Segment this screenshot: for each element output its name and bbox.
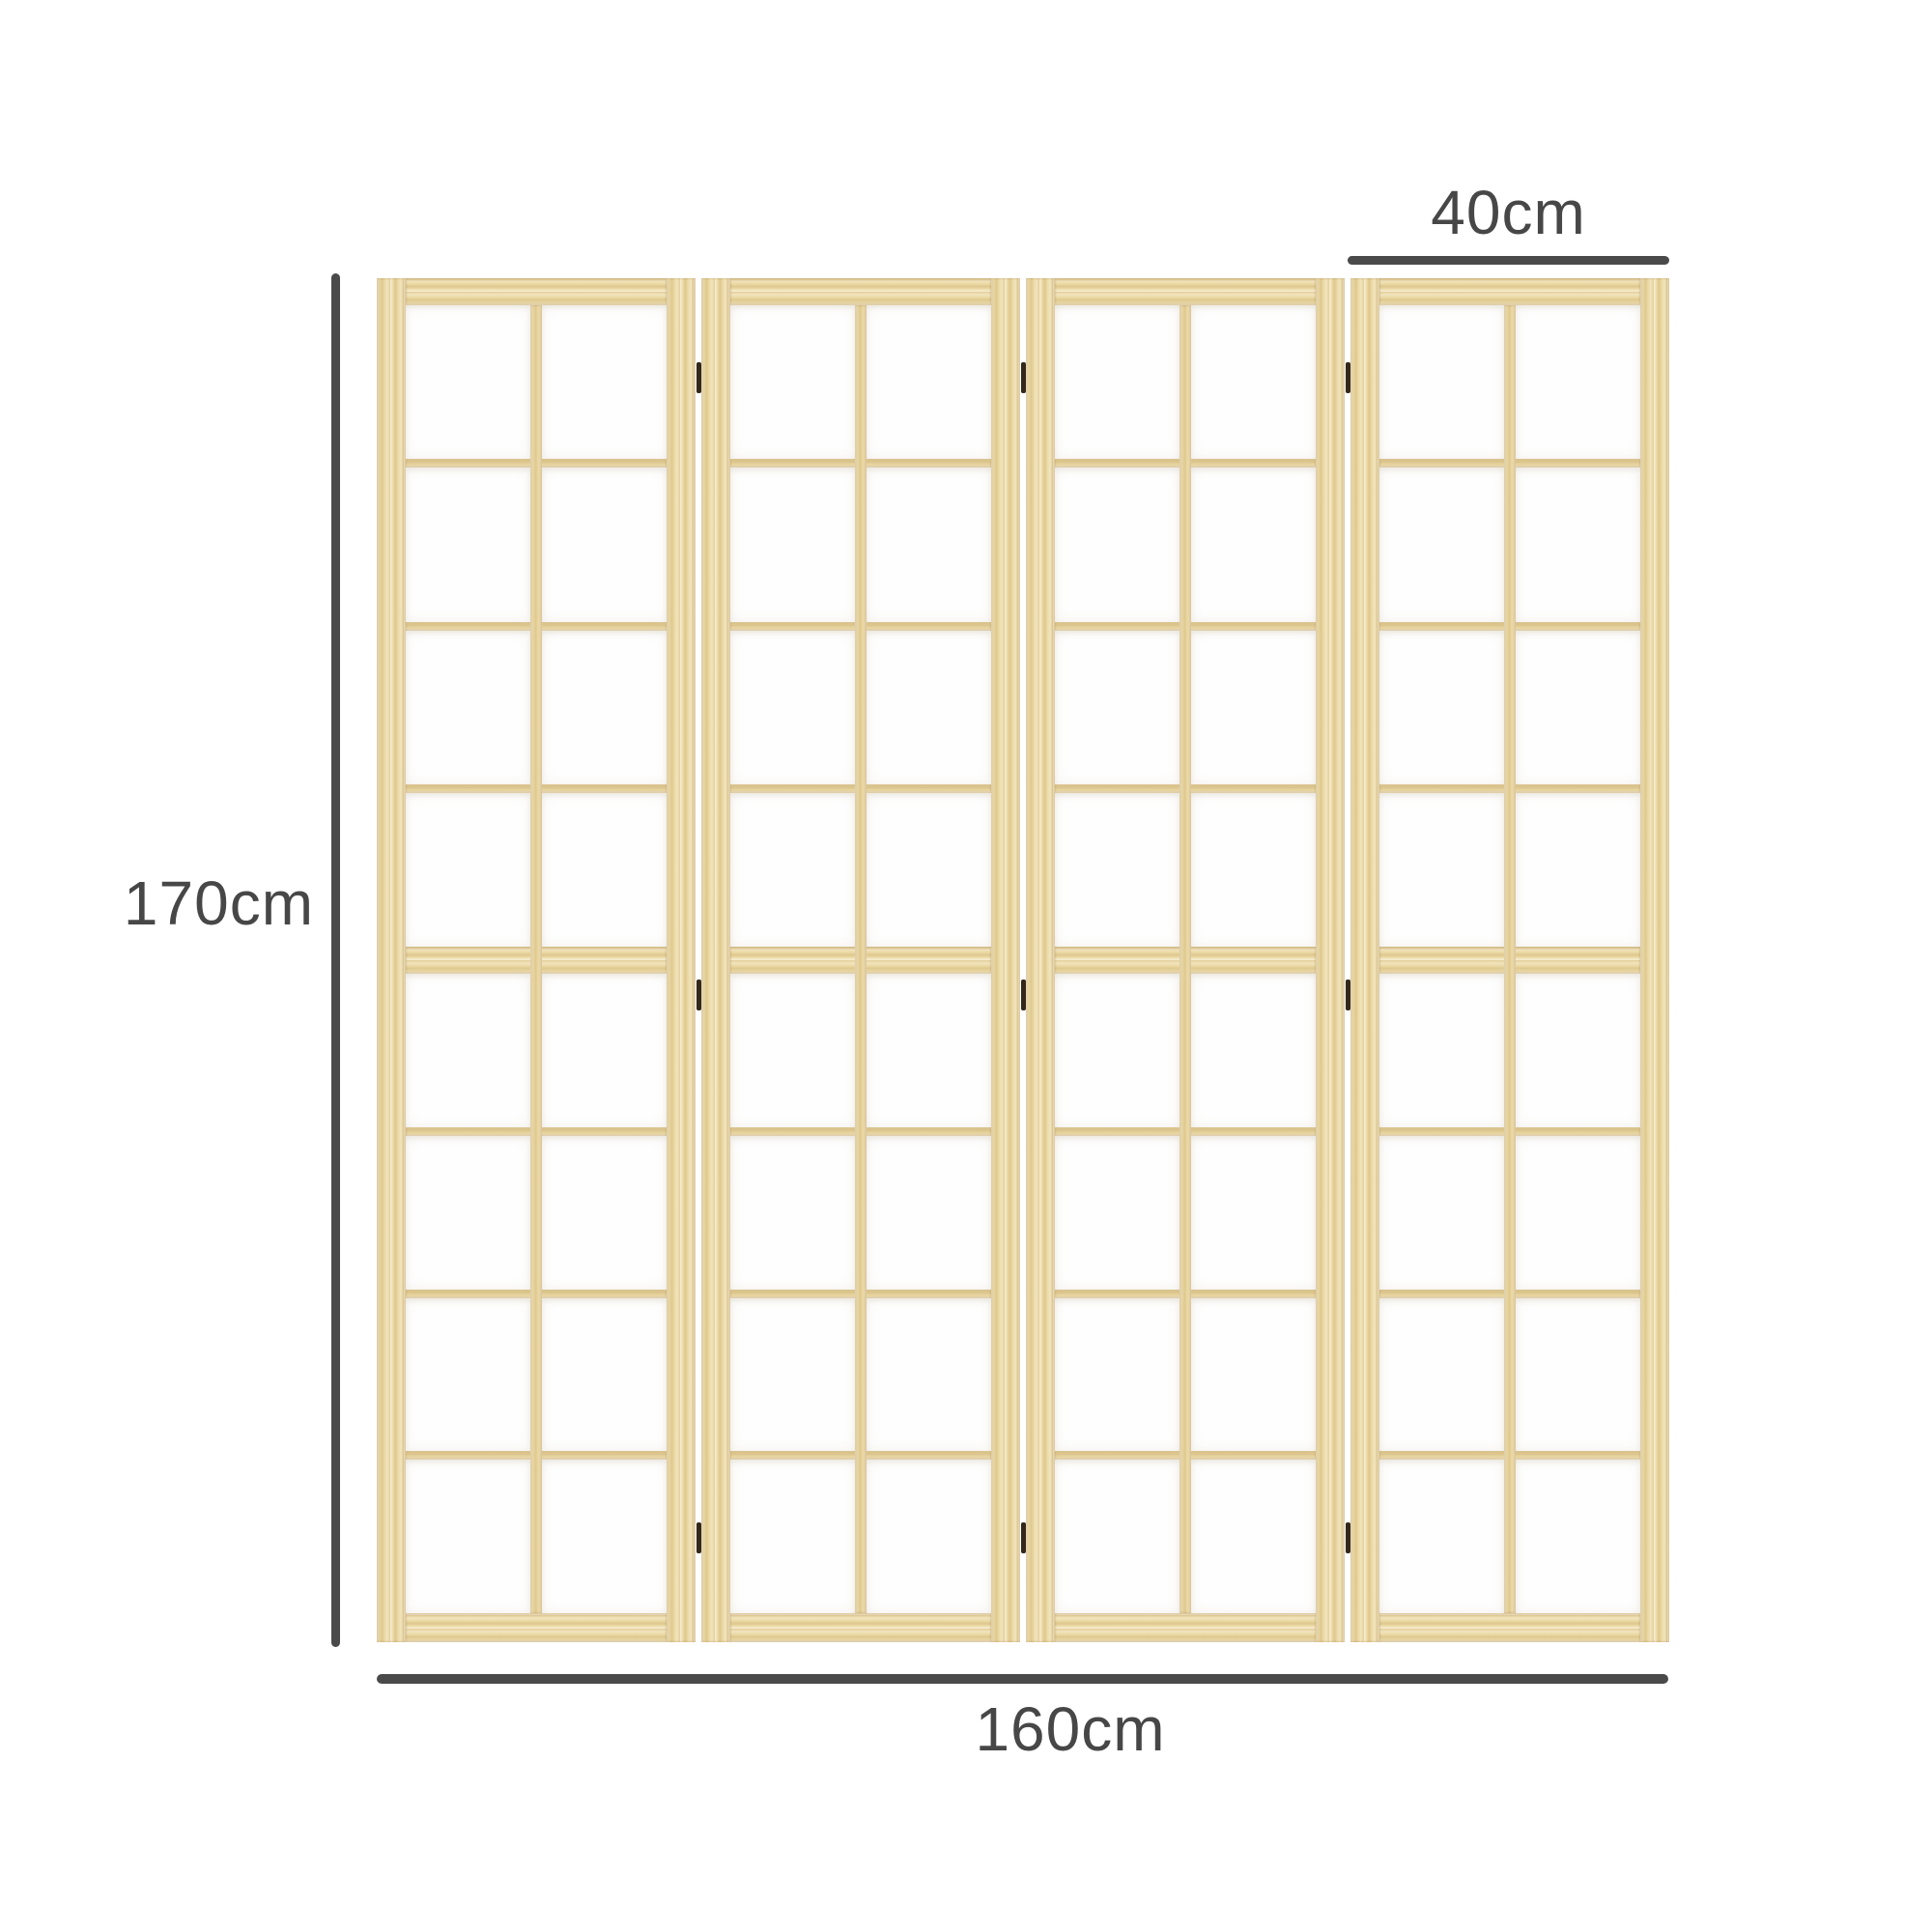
panel-width-dimension-label: 40cm	[1348, 182, 1669, 243]
panel-left-stile	[377, 278, 406, 1642]
shoji-pane	[1191, 1136, 1316, 1290]
shoji-pane	[867, 793, 991, 947]
panel-top-rail	[1379, 278, 1640, 305]
shoji-pane	[1191, 1460, 1316, 1613]
shoji-pane	[867, 1460, 991, 1613]
shoji-pane	[406, 793, 530, 947]
shoji-pane	[730, 1136, 855, 1290]
shoji-pane	[1379, 793, 1504, 947]
shoji-pane	[1379, 974, 1504, 1127]
shoji-pane	[1516, 793, 1640, 947]
shoji-pane	[542, 974, 667, 1127]
hinge	[1346, 362, 1350, 393]
shoji-pane	[406, 1460, 530, 1613]
shoji-pane	[867, 631, 991, 784]
shoji-pane	[867, 1136, 991, 1290]
shoji-pane	[867, 305, 991, 459]
panel-right-stile	[667, 278, 696, 1642]
shoji-pane	[1516, 305, 1640, 459]
product-dimension-diagram: 170cm 40cm 160cm	[0, 0, 1932, 1932]
shoji-pane	[730, 631, 855, 784]
panel-left-stile	[1026, 278, 1055, 1642]
shoji-pane	[1516, 1460, 1640, 1613]
shoji-pane	[542, 468, 667, 621]
panel-top-rail	[406, 278, 667, 305]
screen-panel	[701, 278, 1020, 1642]
total-width-dimension-label: 160cm	[877, 1698, 1264, 1760]
shoji-pane	[1379, 1298, 1504, 1452]
height-dimension-line	[331, 273, 340, 1647]
panel-center-mullion	[855, 305, 867, 1613]
shoji-pane	[1055, 468, 1179, 621]
shoji-pane	[542, 631, 667, 784]
panel-center-mullion	[530, 305, 542, 1613]
hinge	[1021, 980, 1026, 1010]
shoji-pane	[1516, 1298, 1640, 1452]
shoji-pane	[867, 1298, 991, 1452]
total-width-dimension-line	[377, 1674, 1668, 1684]
shoji-pane	[1191, 793, 1316, 947]
shoji-pane	[542, 793, 667, 947]
shoji-pane	[730, 974, 855, 1127]
shoji-pane	[730, 793, 855, 947]
panel-bottom-rail	[1379, 1613, 1640, 1642]
shoji-pane	[406, 305, 530, 459]
shoji-pane	[542, 1298, 667, 1452]
shoji-pane	[542, 1460, 667, 1613]
panel-right-stile	[1316, 278, 1345, 1642]
shoji-pane	[1191, 305, 1316, 459]
shoji-pane	[730, 468, 855, 621]
shoji-pane	[1191, 974, 1316, 1127]
hinge	[1021, 1522, 1026, 1553]
panel-right-stile	[1640, 278, 1669, 1642]
panel-center-mullion	[1504, 305, 1516, 1613]
shoji-pane	[1516, 631, 1640, 784]
shoji-pane	[1191, 468, 1316, 621]
shoji-pane	[730, 305, 855, 459]
shoji-pane	[406, 974, 530, 1127]
shoji-pane	[1055, 631, 1179, 784]
shoji-pane	[542, 305, 667, 459]
panel-top-rail	[730, 278, 991, 305]
shoji-pane	[1055, 1298, 1179, 1452]
shoji-pane	[406, 1136, 530, 1290]
shoji-pane	[406, 468, 530, 621]
panel-center-mullion	[1179, 305, 1191, 1613]
room-divider	[377, 278, 1669, 1642]
shoji-pane	[867, 468, 991, 621]
screen-panel	[377, 278, 696, 1642]
screen-panel	[1026, 278, 1345, 1642]
panel-left-stile	[701, 278, 730, 1642]
hinge	[1021, 362, 1026, 393]
panel-right-stile	[991, 278, 1020, 1642]
shoji-pane	[406, 631, 530, 784]
shoji-pane	[1379, 631, 1504, 784]
shoji-pane	[1379, 468, 1504, 621]
shoji-pane	[1516, 1136, 1640, 1290]
shoji-pane	[1055, 974, 1179, 1127]
shoji-pane	[542, 1136, 667, 1290]
shoji-pane	[1055, 305, 1179, 459]
height-dimension-label: 170cm	[24, 872, 314, 934]
shoji-pane	[1516, 974, 1640, 1127]
hinge	[1346, 980, 1350, 1010]
shoji-pane	[1379, 1460, 1504, 1613]
panel-left-stile	[1350, 278, 1379, 1642]
panel-width-dimension-line	[1348, 256, 1669, 265]
panel-bottom-rail	[730, 1613, 991, 1642]
shoji-pane	[730, 1298, 855, 1452]
shoji-pane	[867, 974, 991, 1127]
shoji-pane	[1055, 1136, 1179, 1290]
shoji-pane	[1191, 1298, 1316, 1452]
shoji-pane	[1516, 468, 1640, 621]
hinge	[696, 980, 701, 1010]
panel-bottom-rail	[406, 1613, 667, 1642]
hinge	[696, 1522, 701, 1553]
hinge	[1346, 1522, 1350, 1553]
shoji-pane	[1055, 793, 1179, 947]
shoji-pane	[1191, 631, 1316, 784]
panel-top-rail	[1055, 278, 1316, 305]
screen-panel	[1350, 278, 1669, 1642]
hinge	[696, 362, 701, 393]
shoji-pane	[406, 1298, 530, 1452]
shoji-pane	[1379, 305, 1504, 459]
shoji-pane	[1055, 1460, 1179, 1613]
panel-bottom-rail	[1055, 1613, 1316, 1642]
shoji-pane	[1379, 1136, 1504, 1290]
shoji-pane	[730, 1460, 855, 1613]
